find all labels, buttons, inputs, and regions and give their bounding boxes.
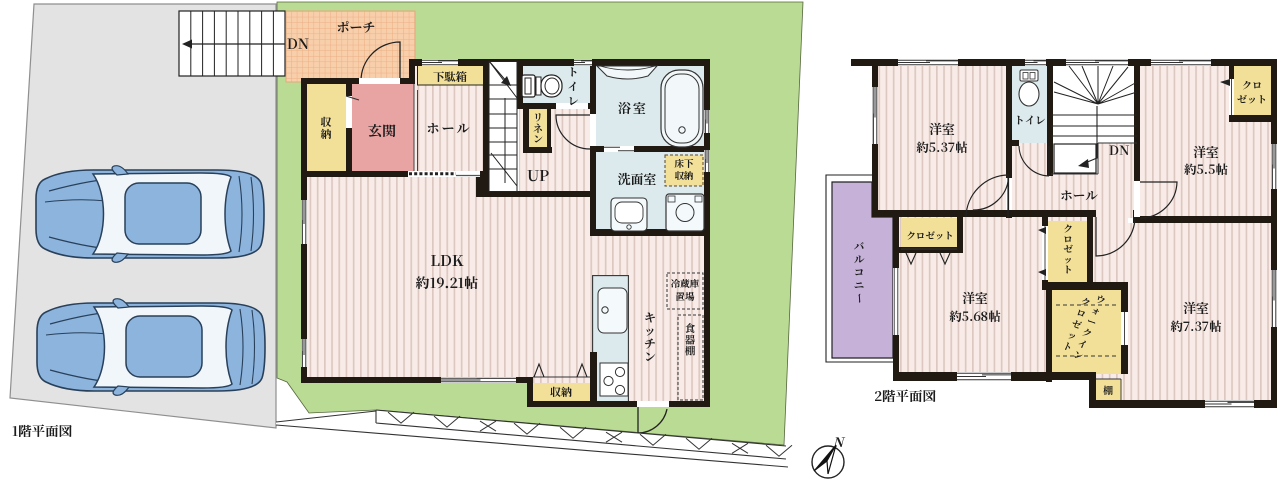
svg-text:玄関: 玄関 bbox=[368, 121, 396, 141]
svg-text:2階平面図: 2階平面図 bbox=[874, 385, 937, 405]
svg-text:ホール: ホール bbox=[1060, 186, 1098, 204]
svg-text:ー: ー bbox=[851, 293, 866, 304]
svg-text:ン: ン bbox=[533, 131, 543, 146]
svg-text:ゼット: ゼット bbox=[1236, 91, 1267, 106]
svg-text:約19.21帖: 約19.21帖 bbox=[416, 273, 478, 293]
svg-text:約5.68帖: 約5.68帖 bbox=[949, 307, 1001, 325]
svg-text:洋室: 洋室 bbox=[962, 288, 988, 307]
svg-text:UP: UP bbox=[527, 165, 549, 186]
svg-text:納: 納 bbox=[321, 126, 332, 142]
svg-text:冷蔵庫: 冷蔵庫 bbox=[671, 276, 700, 290]
svg-text:棚: 棚 bbox=[1102, 382, 1113, 397]
svg-text:LDK: LDK bbox=[431, 250, 464, 271]
svg-text:DN: DN bbox=[287, 34, 310, 54]
svg-text:洋室: 洋室 bbox=[1183, 298, 1209, 317]
svg-text:下駄箱: 下駄箱 bbox=[433, 69, 468, 85]
svg-text:ン: ン bbox=[644, 348, 656, 365]
svg-text:収納: 収納 bbox=[550, 384, 572, 400]
svg-text:収納: 収納 bbox=[674, 168, 694, 182]
svg-text:クロ: クロ bbox=[1242, 77, 1262, 92]
svg-text:置場: 置場 bbox=[675, 289, 694, 303]
svg-text:ポーチ: ポーチ bbox=[336, 17, 375, 36]
svg-text:レ: レ bbox=[568, 93, 579, 109]
svg-text:洗面室: 洗面室 bbox=[616, 169, 656, 188]
svg-text:DN: DN bbox=[1109, 140, 1130, 159]
svg-text:ニ: ニ bbox=[854, 278, 865, 293]
svg-text:約5.37帖: 約5.37帖 bbox=[916, 138, 968, 156]
svg-text:ホール: ホール bbox=[426, 118, 471, 137]
svg-text:ト: ト bbox=[1063, 262, 1073, 276]
svg-text:クロゼット: クロゼット bbox=[906, 228, 954, 242]
svg-text:浴室: 浴室 bbox=[618, 98, 648, 117]
svg-text:洋室: 洋室 bbox=[929, 119, 955, 138]
svg-text:1階平面図: 1階平面図 bbox=[12, 420, 73, 440]
svg-text:約7.37帖: 約7.37帖 bbox=[1170, 317, 1222, 335]
svg-text:棚: 棚 bbox=[685, 344, 696, 359]
svg-text:トイレ: トイレ bbox=[1014, 113, 1046, 128]
svg-text:約5.5帖: 約5.5帖 bbox=[1184, 160, 1229, 178]
svg-text:洋室: 洋室 bbox=[1193, 142, 1219, 161]
